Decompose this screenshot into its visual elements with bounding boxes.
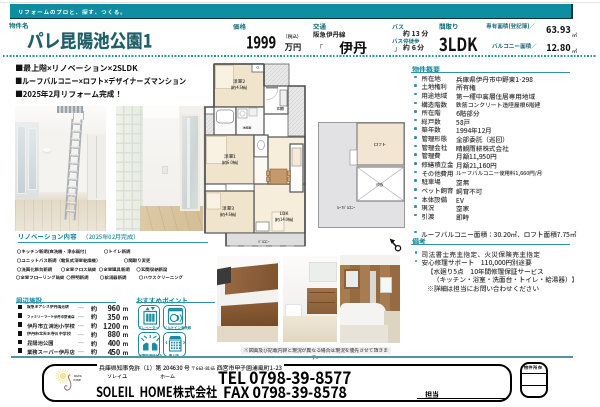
svg-text:(約6.0帖): (約6.0帖)	[222, 160, 239, 166]
svg-text:玄関: 玄関	[277, 107, 285, 112]
svg-text:ﾙｰﾌﾊﾞﾙｺﾆｰ: ﾙｰﾌﾊﾞﾙｺﾆｰ	[336, 205, 355, 211]
svg-text:吹抜: 吹抜	[377, 182, 385, 188]
svg-text:洋室2: 洋室2	[232, 78, 245, 85]
svg-text:(約4.5帖): (約4.5帖)	[231, 85, 248, 91]
svg-text:洋室3: 洋室3	[221, 205, 234, 212]
svg-text:CL: CL	[256, 66, 260, 70]
svg-text:洋室1: 洋室1	[223, 153, 236, 160]
svg-text:(約4.5帖): (約4.5帖)	[220, 212, 237, 218]
svg-text:洗面室: 洗面室	[241, 126, 251, 130]
svg-text:ﾊﾞﾙｺﾆｰ: ﾊﾞﾙｺﾆｰ	[258, 239, 269, 245]
svg-text:(約14.0帖): (約14.0帖)	[275, 217, 294, 223]
svg-text:HOME: HOME	[74, 378, 82, 382]
svg-text:ロフト: ロフト	[374, 142, 386, 148]
